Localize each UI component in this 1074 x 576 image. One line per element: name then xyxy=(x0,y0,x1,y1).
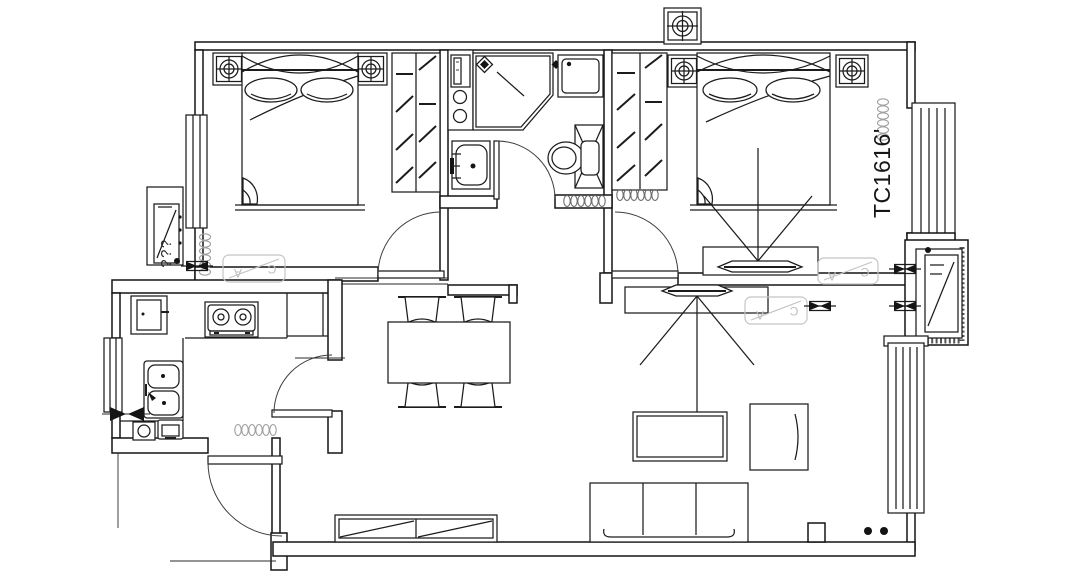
svg-text:A: A xyxy=(756,308,764,322)
svg-text:A: A xyxy=(234,266,242,280)
kitchen xyxy=(120,293,345,440)
floor-plan-canvas: ??? xyxy=(0,0,1074,576)
wall-kitchen-bottom xyxy=(112,438,208,453)
coffee-table-icon xyxy=(633,412,727,461)
floor-dot xyxy=(880,527,888,535)
unit-type-label: TC1616' xyxy=(869,128,895,218)
wall-cap xyxy=(600,273,612,303)
nightstand-lamp-icon xyxy=(355,53,387,85)
bedroom2: TC1616' xyxy=(612,53,895,278)
entry-door xyxy=(208,456,282,536)
outdoor-ac-unit-left: ??? xyxy=(147,187,183,268)
outdoor-ac-unit-right xyxy=(916,247,962,338)
wall-bathroom-bottom-left xyxy=(440,196,497,208)
window-bedroom1-left xyxy=(186,115,207,228)
refrigerator-icon xyxy=(131,296,169,334)
toilet-icon xyxy=(548,141,599,175)
ac-balcony xyxy=(905,240,968,345)
bed-double-icon xyxy=(690,53,837,210)
door-bedroom1 xyxy=(378,212,444,278)
radiator-icon xyxy=(617,190,658,201)
wall-bathroom-bedroom2 xyxy=(604,50,612,273)
wall-bottom-stub xyxy=(808,523,825,542)
flue-shaft xyxy=(664,8,701,44)
nightstand-lamp-icon xyxy=(836,55,868,87)
gas-stove-icon xyxy=(205,302,258,337)
wall-stub-hall xyxy=(448,285,517,295)
wardrobe-icon xyxy=(612,53,667,190)
wall-bottom xyxy=(273,542,915,556)
shower-icon xyxy=(473,53,553,130)
bedroom1 xyxy=(200,53,445,278)
wall-left-upper xyxy=(195,50,203,118)
bed-double-icon xyxy=(235,53,365,210)
washing-machine-icon xyxy=(552,55,604,97)
wall-kitchen-left-upper xyxy=(112,293,120,338)
wall-entry-side xyxy=(272,438,280,536)
door-bedroom2 xyxy=(612,212,678,278)
vanity-sink-icon xyxy=(450,141,490,189)
door-kitchen xyxy=(272,355,345,417)
wall-kitchen-right-upper xyxy=(328,280,342,360)
svg-text:C: C xyxy=(789,304,798,318)
svg-text:C: C xyxy=(267,262,276,276)
radiator-icon xyxy=(235,425,276,436)
nightstand-lamp-icon xyxy=(668,55,700,87)
floor-plan: ??? xyxy=(0,0,1074,576)
nightstand-lamp-icon xyxy=(213,53,245,85)
bathroom xyxy=(448,50,605,207)
sofa-icon xyxy=(590,483,748,542)
wall-top xyxy=(195,42,915,50)
sliding-window-living xyxy=(884,336,928,513)
window-kitchen-left xyxy=(104,338,122,412)
wall-bedroom1-bathroom xyxy=(440,50,448,280)
svg-text:C: C xyxy=(860,265,869,279)
dining-area xyxy=(388,297,510,407)
tv-with-cabinet-living xyxy=(625,285,768,412)
ac-outdoor-label: ??? xyxy=(158,238,175,268)
svg-text:A: A xyxy=(828,269,836,283)
water-heater-cabinet-icon xyxy=(448,50,473,130)
small-appliance-icon xyxy=(133,420,183,440)
dining-table-icon xyxy=(388,322,510,383)
wall-stub-cap xyxy=(509,285,517,303)
floor-dot xyxy=(864,527,872,535)
tv-cabinet-icon xyxy=(335,515,497,542)
wall-kitchen-top xyxy=(112,280,340,293)
armchair-icon xyxy=(750,404,808,470)
wall-right-upper xyxy=(907,42,915,108)
door-bathroom xyxy=(494,141,555,199)
kitchen-sink-icon xyxy=(144,361,183,418)
wardrobe-icon xyxy=(392,53,440,192)
